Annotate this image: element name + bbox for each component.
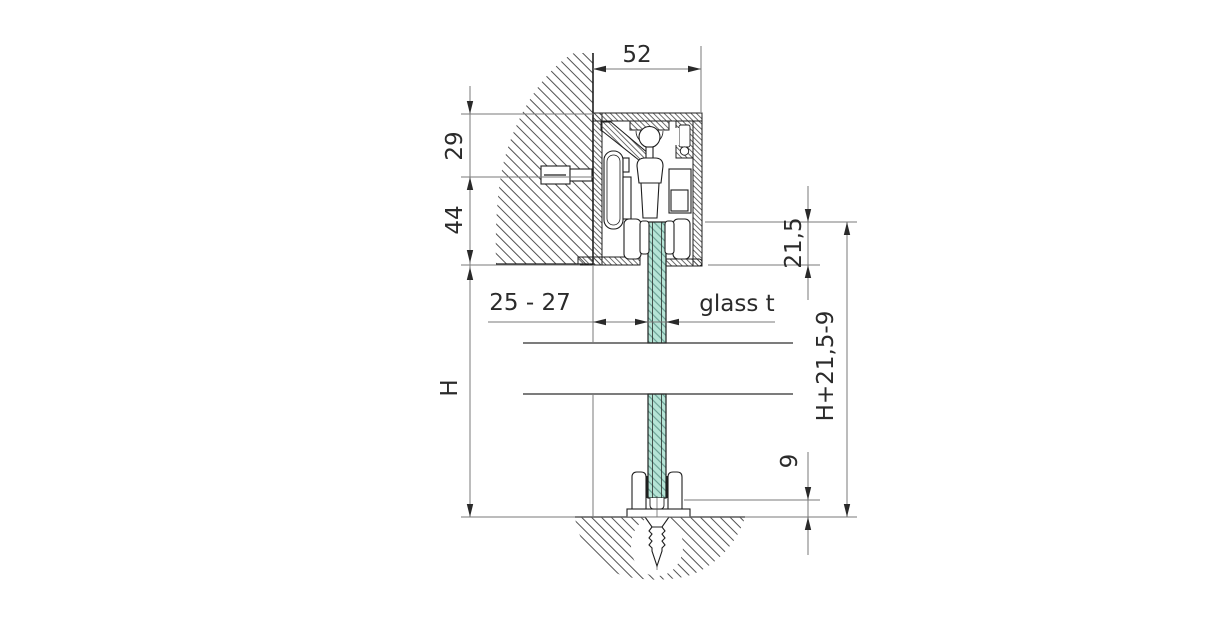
glass-upper-segment	[648, 222, 666, 343]
profile-right-wall	[693, 121, 702, 266]
roller-flange	[623, 177, 631, 219]
dim-wall-clearance-label: 25 - 27	[489, 290, 570, 316]
dim-glass-top-inset-label: 21,5	[781, 217, 807, 268]
profile-bottom-foot-right	[664, 259, 702, 266]
screw-shaft	[570, 169, 592, 181]
guide-base	[627, 509, 690, 517]
adjustment-block-inner	[671, 190, 688, 211]
dim-glass-top-inset: 21,5	[781, 186, 811, 300]
hanger-dome	[637, 158, 663, 183]
wall-anchor-screw	[541, 166, 592, 184]
dim-glass-thickness-label: glass t	[699, 291, 774, 317]
dim-floor-gap: 9	[777, 452, 811, 555]
roller-pin	[623, 158, 629, 172]
dim-glass-height-label: H+21,5-9	[813, 311, 839, 422]
profile-back-wall	[593, 113, 602, 265]
guide-arm-right	[668, 472, 682, 509]
wall-hatch-area	[496, 53, 593, 264]
clamp-pad-left	[640, 221, 649, 254]
dim-track-width: 52	[593, 42, 701, 72]
break-lines	[523, 343, 793, 394]
clamp-pad-right	[665, 221, 674, 254]
accessory-channel-opening	[673, 128, 679, 145]
suspension-roller	[639, 127, 660, 148]
hanger-column	[641, 183, 659, 218]
guide-arm-left	[632, 472, 646, 509]
dim-left-chain: 29 44 H	[437, 86, 473, 517]
dim-track-width-label: 52	[622, 42, 651, 68]
dim-top-offset-label: 29	[442, 131, 468, 160]
clamp-plate-left	[624, 219, 641, 259]
glass-lower-segment	[648, 394, 666, 498]
glass-panel	[648, 222, 666, 498]
dim-track-height-label: 44	[442, 205, 468, 234]
dim-glass-height: H+21,5-9	[813, 222, 850, 517]
wall-section	[496, 53, 593, 265]
section-drawing: 52 29 44 H 25 - 27 glass t 21,5 H+21,5-9	[0, 0, 1214, 619]
accessory-channel-groove	[680, 147, 688, 155]
dim-floor-gap-label: 9	[777, 454, 803, 469]
dim-opening-height-label: H	[437, 379, 463, 396]
suspension-bolt	[646, 147, 653, 159]
clamp-plate-right	[673, 219, 690, 259]
profile-top-wall	[593, 113, 702, 121]
accessory-channel-slot	[679, 125, 690, 147]
dim-wall-clearance-and-glass: 25 - 27 glass t	[488, 290, 775, 325]
